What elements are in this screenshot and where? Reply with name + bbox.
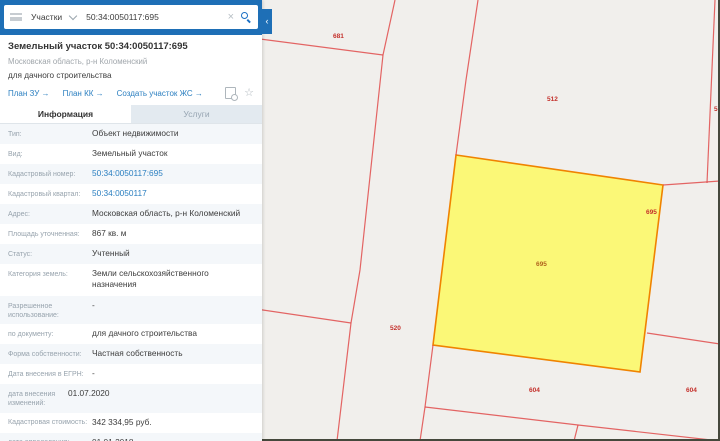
row-value: 01.01.2018 [92,437,254,441]
table-row: Статус: Учтенный [0,244,262,264]
row-label: Кадастровый квартал: [8,188,92,199]
row-label: Кадастровый номер: [8,168,92,179]
row-label: Разрешенное использование: [8,300,92,320]
row-label: Тип: [8,128,92,139]
table-row: Кадастровая стоимость: 342 334,95 руб. [0,413,262,433]
table-row: Категория земель: Земли сельскохозяйстве… [0,264,262,296]
row-value: Земли сельскохозяйственного назначения [92,268,222,290]
parcel-usage: для дачного строительства [8,71,254,80]
map-canvas: 6815125695695520604604 [262,0,720,441]
menu-icon[interactable] [10,13,22,21]
row-value: Частная собственность [92,348,254,359]
create-parcel-link[interactable]: Создать участок ЖС → [117,89,203,98]
parcel-number-label: 695 [536,261,547,268]
cadastral-quarter-link[interactable]: 50:34:0050117 [92,188,254,199]
row-label: Вид: [8,148,92,159]
panel-tabs: Информация Услуги [0,105,262,124]
row-label: Площадь уточненная: [8,228,92,239]
plan-kk-link[interactable]: План КК → [63,89,104,98]
chevron-down-icon[interactable] [69,11,77,19]
table-row: Дата внесения в ЕГРН: - [0,364,262,384]
parcel-number-label: 695 [646,209,657,216]
row-label: Категория земель: [8,268,92,279]
row-value: Земельный участок [92,148,254,159]
parcel-location: Московская область, р-н Коломенский [8,57,254,66]
search-category-dropdown[interactable]: Участки [31,12,62,22]
doc-search-icon[interactable] [225,87,236,99]
row-label: Адрес: [8,208,92,219]
search-icon[interactable] [241,12,252,23]
row-label: Дата внесения в ЕГРН: [8,368,92,379]
search-bar[interactable]: Участки × [4,5,258,29]
search-input[interactable] [86,12,220,22]
collapse-panel-button[interactable]: ‹ [262,9,272,34]
parcel-title: Земельный участок 50:34:0050117:695 [8,41,254,52]
table-row: Кадастровый квартал: 50:34:0050117 [0,184,262,204]
plan-links-row: План ЗУ → План КК → Создать участок ЖС →… [8,87,254,99]
row-value: Объект недвижимости [92,128,254,139]
row-value: Учтенный [92,248,254,259]
row-value: 01.07.2020 [68,388,254,399]
table-row: Вид: Земельный участок [0,144,262,164]
table-row: Кадастровый номер: 50:34:0050117:695 [0,164,262,184]
table-row: Адрес: Московская область, р-н Коломенск… [0,204,262,224]
row-label: Форма собственности: [8,348,92,359]
table-row: Форма собственности: Частная собственнос… [0,344,262,364]
row-value: Московская область, р-н Коломенский [92,208,254,219]
result-header: Земельный участок 50:34:0050117:695 Моск… [0,35,262,105]
row-value: 342 334,95 руб. [92,417,254,428]
search-header: Участки × [0,0,262,35]
favorite-star-icon[interactable]: ☆ [244,88,254,98]
selected-parcel-695[interactable] [433,155,663,372]
cadastral-number-link[interactable]: 50:34:0050117:695 [92,168,254,179]
row-label: дата внесения изменений: [8,388,68,408]
row-value: 867 кв. м [92,228,254,239]
row-value: - [92,300,254,311]
tab-information[interactable]: Информация [0,105,131,123]
parcel-info-panel: Участки × Земельный участок 50:34:005011… [0,0,262,441]
table-row: по документу: для дачного строительства [0,324,262,344]
row-label: по документу: [8,328,92,339]
tab-services[interactable]: Услуги [131,105,262,123]
parcel-number-label: 604 [529,387,540,394]
plan-zu-link[interactable]: План ЗУ → [8,89,50,98]
row-value: - [92,368,254,379]
table-row: Тип: Объект недвижимости [0,124,262,144]
parcel-attributes-table: Тип: Объект недвижимости Вид: Земельный … [0,124,262,441]
table-row: дата определения: 01.01.2018 [0,433,262,441]
parcel-number-label: 512 [547,96,558,103]
table-row: Площадь уточненная: 867 кв. м [0,224,262,244]
row-label: дата определения: [8,437,92,441]
row-value: для дачного строительства [92,328,254,339]
clear-search-icon[interactable]: × [228,11,234,23]
parcel-number-label: 604 [686,387,697,394]
parcel-number-label: 520 [390,325,401,332]
table-row: дата внесения изменений: 01.07.2020 [0,384,262,412]
table-row: Разрешенное использование: - [0,296,262,324]
parcel-number-label: 681 [333,33,344,40]
row-label: Статус: [8,248,92,259]
cadastral-map[interactable]: 6815125695695520604604 [262,0,720,441]
row-label: Кадастровая стоимость: [8,417,92,428]
